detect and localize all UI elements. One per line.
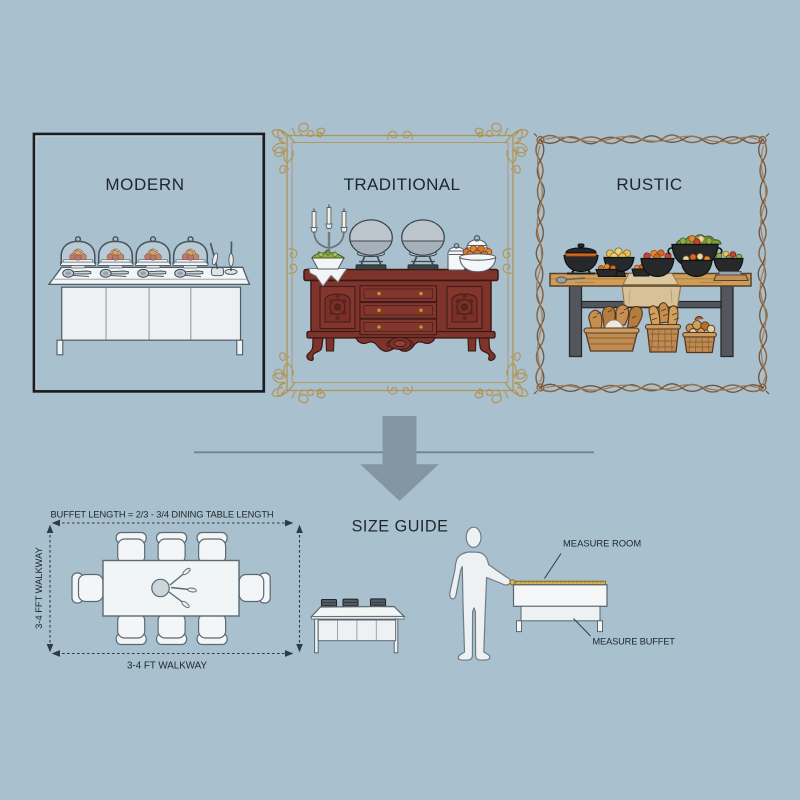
svg-text:MODERN: MODERN bbox=[105, 175, 184, 194]
svg-text:MEASURE ROOM: MEASURE ROOM bbox=[563, 538, 641, 549]
svg-text:3-4 FFT WALKWAY: 3-4 FFT WALKWAY bbox=[34, 547, 44, 629]
svg-text:TRADITIONAL: TRADITIONAL bbox=[344, 175, 461, 194]
svg-text:RUSTIC: RUSTIC bbox=[616, 175, 682, 194]
svg-text:MEASURE BUFFET: MEASURE BUFFET bbox=[593, 637, 676, 647]
svg-text:3-4 FT WALKWAY: 3-4 FT WALKWAY bbox=[127, 661, 207, 672]
svg-text:BUFFET LENGTH = 2/3 - 3/4 DINI: BUFFET LENGTH = 2/3 - 3/4 DINING TABLE L… bbox=[50, 510, 273, 520]
svg-text:SIZE GUIDE: SIZE GUIDE bbox=[352, 518, 449, 536]
